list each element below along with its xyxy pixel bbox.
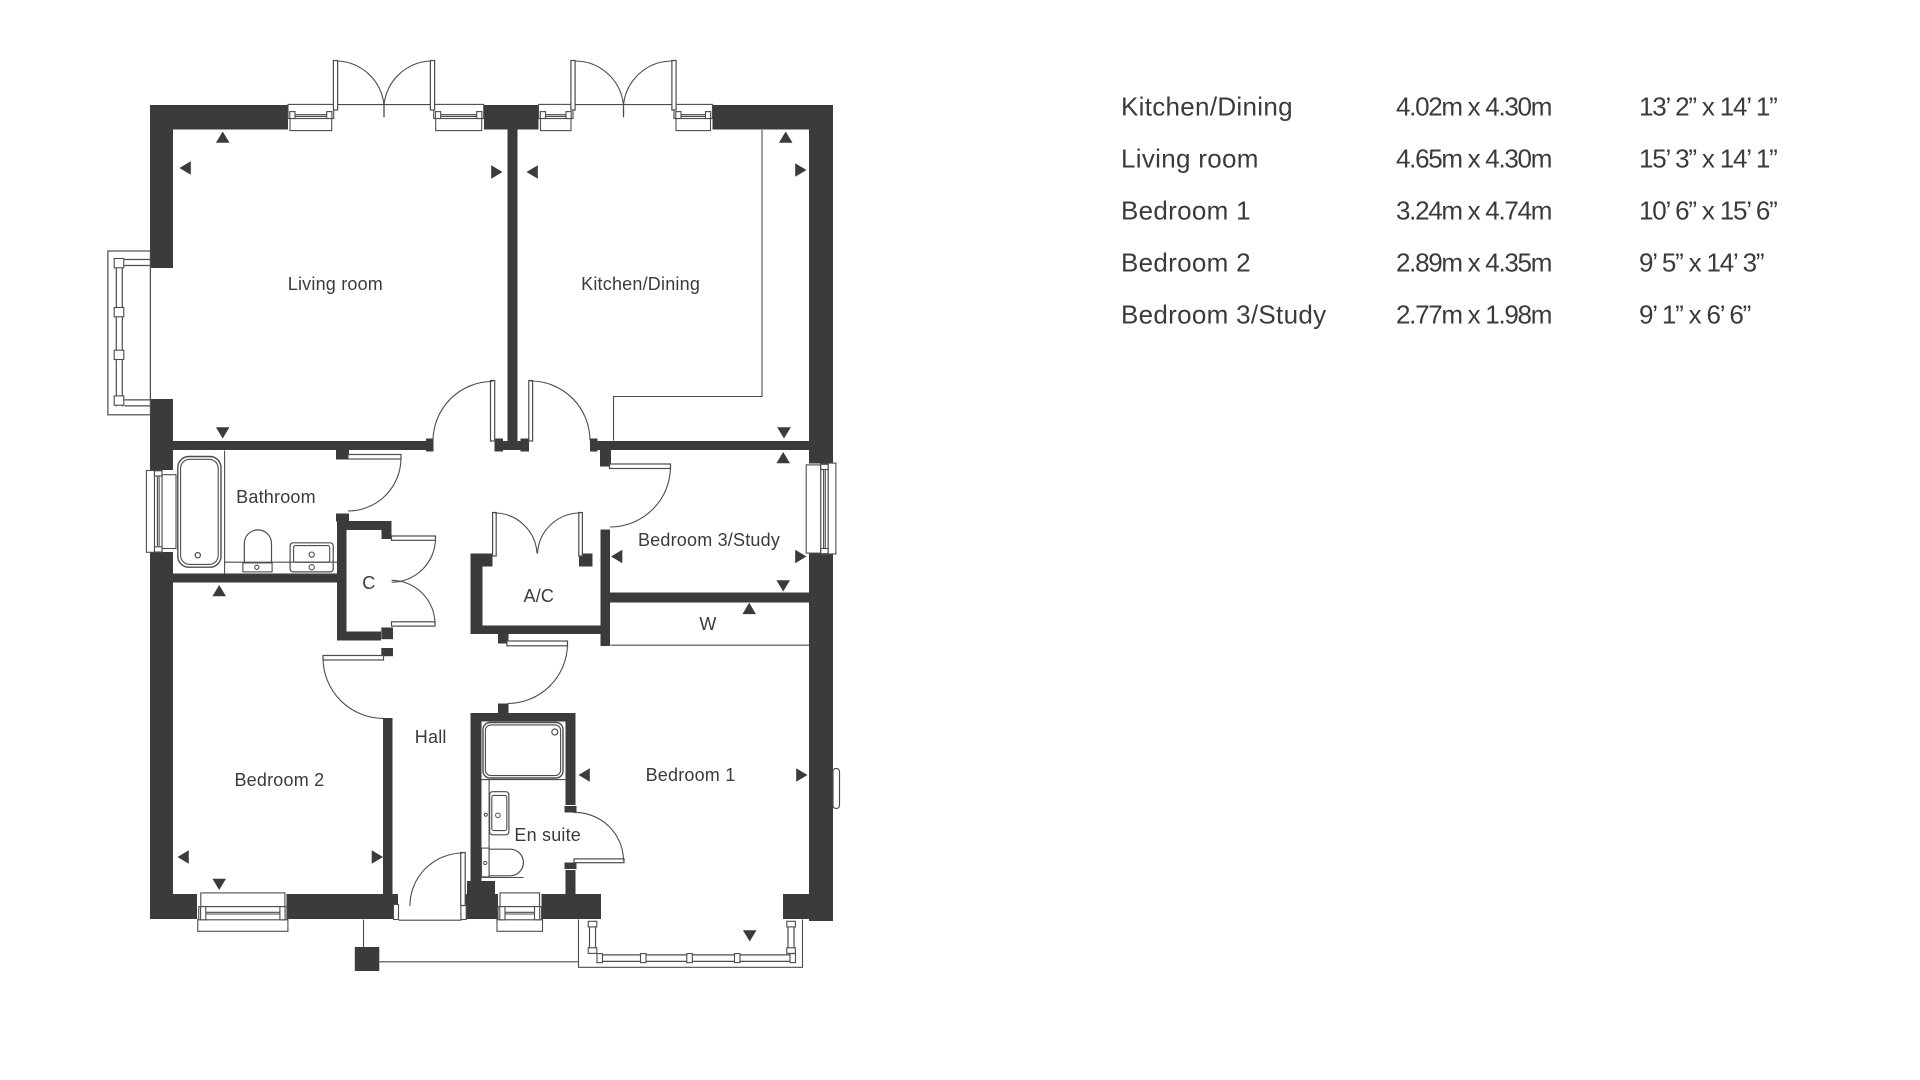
svg-text:Bedroom 3/Study: Bedroom 3/Study (638, 530, 780, 550)
svg-text:2.77m x 1.98m: 2.77m x 1.98m (1396, 300, 1551, 330)
svg-text:A/C: A/C (523, 586, 554, 606)
svg-text:W: W (699, 614, 716, 634)
svg-text:Bathroom: Bathroom (236, 487, 316, 507)
svg-text:15’ 3” x 14’ 1”: 15’ 3” x 14’ 1” (1639, 144, 1777, 174)
svg-text:Bedroom 2: Bedroom 2 (1121, 248, 1251, 278)
svg-text:Hall: Hall (415, 727, 447, 747)
svg-text:C: C (362, 573, 375, 593)
svg-text:3.24m x 4.74m: 3.24m x 4.74m (1396, 196, 1551, 226)
svg-text:Bedroom 3/Study: Bedroom 3/Study (1121, 300, 1326, 330)
svg-text:Kitchen/Dining: Kitchen/Dining (581, 274, 700, 294)
svg-text:Kitchen/Dining: Kitchen/Dining (1121, 92, 1293, 122)
svg-text:4.02m x 4.30m: 4.02m x 4.30m (1396, 92, 1551, 122)
svg-text:2.89m x 4.35m: 2.89m x 4.35m (1396, 248, 1551, 278)
svg-text:13’ 2” x 14’ 1”: 13’ 2” x 14’ 1” (1639, 92, 1777, 122)
svg-text:Bedroom 2: Bedroom 2 (234, 770, 324, 790)
svg-text:Bedroom 1: Bedroom 1 (1121, 196, 1251, 226)
svg-text:9’ 5” x 14’ 3”: 9’ 5” x 14’ 3” (1639, 248, 1764, 278)
svg-text:Bedroom 1: Bedroom 1 (646, 765, 736, 785)
svg-text:Living room: Living room (1121, 144, 1259, 174)
svg-text:Living room: Living room (288, 274, 383, 294)
svg-text:En suite: En suite (514, 825, 581, 845)
svg-text:4.65m x 4.30m: 4.65m x 4.30m (1396, 144, 1551, 174)
svg-text:10’ 6” x 15’ 6”: 10’ 6” x 15’ 6” (1639, 196, 1777, 226)
svg-text:9’ 1” x 6’ 6”: 9’ 1” x 6’ 6” (1639, 300, 1751, 330)
